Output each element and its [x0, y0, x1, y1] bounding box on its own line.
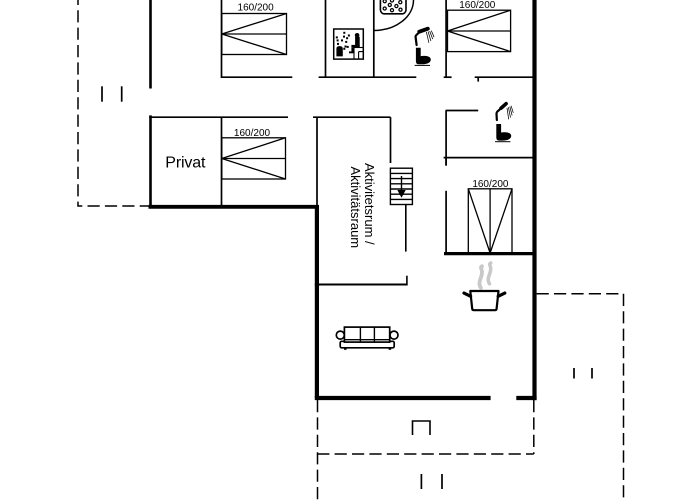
svg-text:160/200: 160/200: [472, 179, 509, 190]
svg-text:Aktivitätsraum: Aktivitätsraum: [348, 167, 363, 249]
svg-text:Aktivitetsrum /: Aktivitetsrum /: [362, 163, 377, 245]
svg-text:160/200: 160/200: [238, 2, 275, 13]
svg-text:Privat: Privat: [165, 155, 206, 172]
svg-text:160/200: 160/200: [234, 128, 271, 139]
svg-text:160/200: 160/200: [459, 0, 496, 11]
